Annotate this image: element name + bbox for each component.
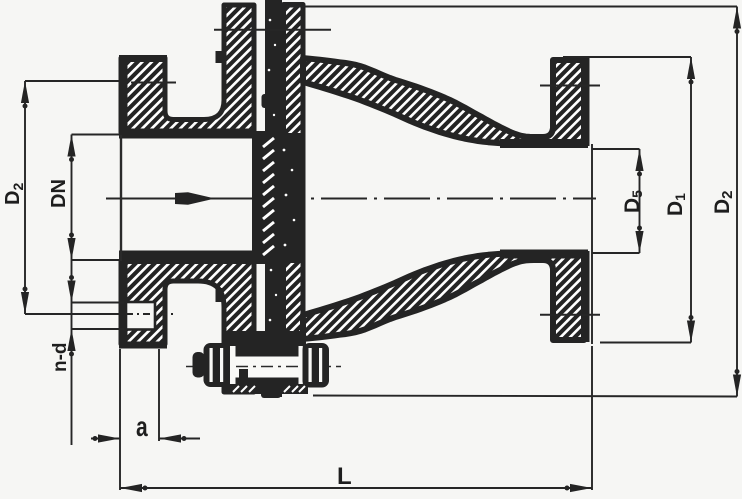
svg-text:a: a <box>136 412 148 442</box>
svg-text:DN: DN <box>48 179 70 208</box>
svg-text:L: L <box>337 463 352 490</box>
svg-text:n-d: n-d <box>50 342 71 372</box>
